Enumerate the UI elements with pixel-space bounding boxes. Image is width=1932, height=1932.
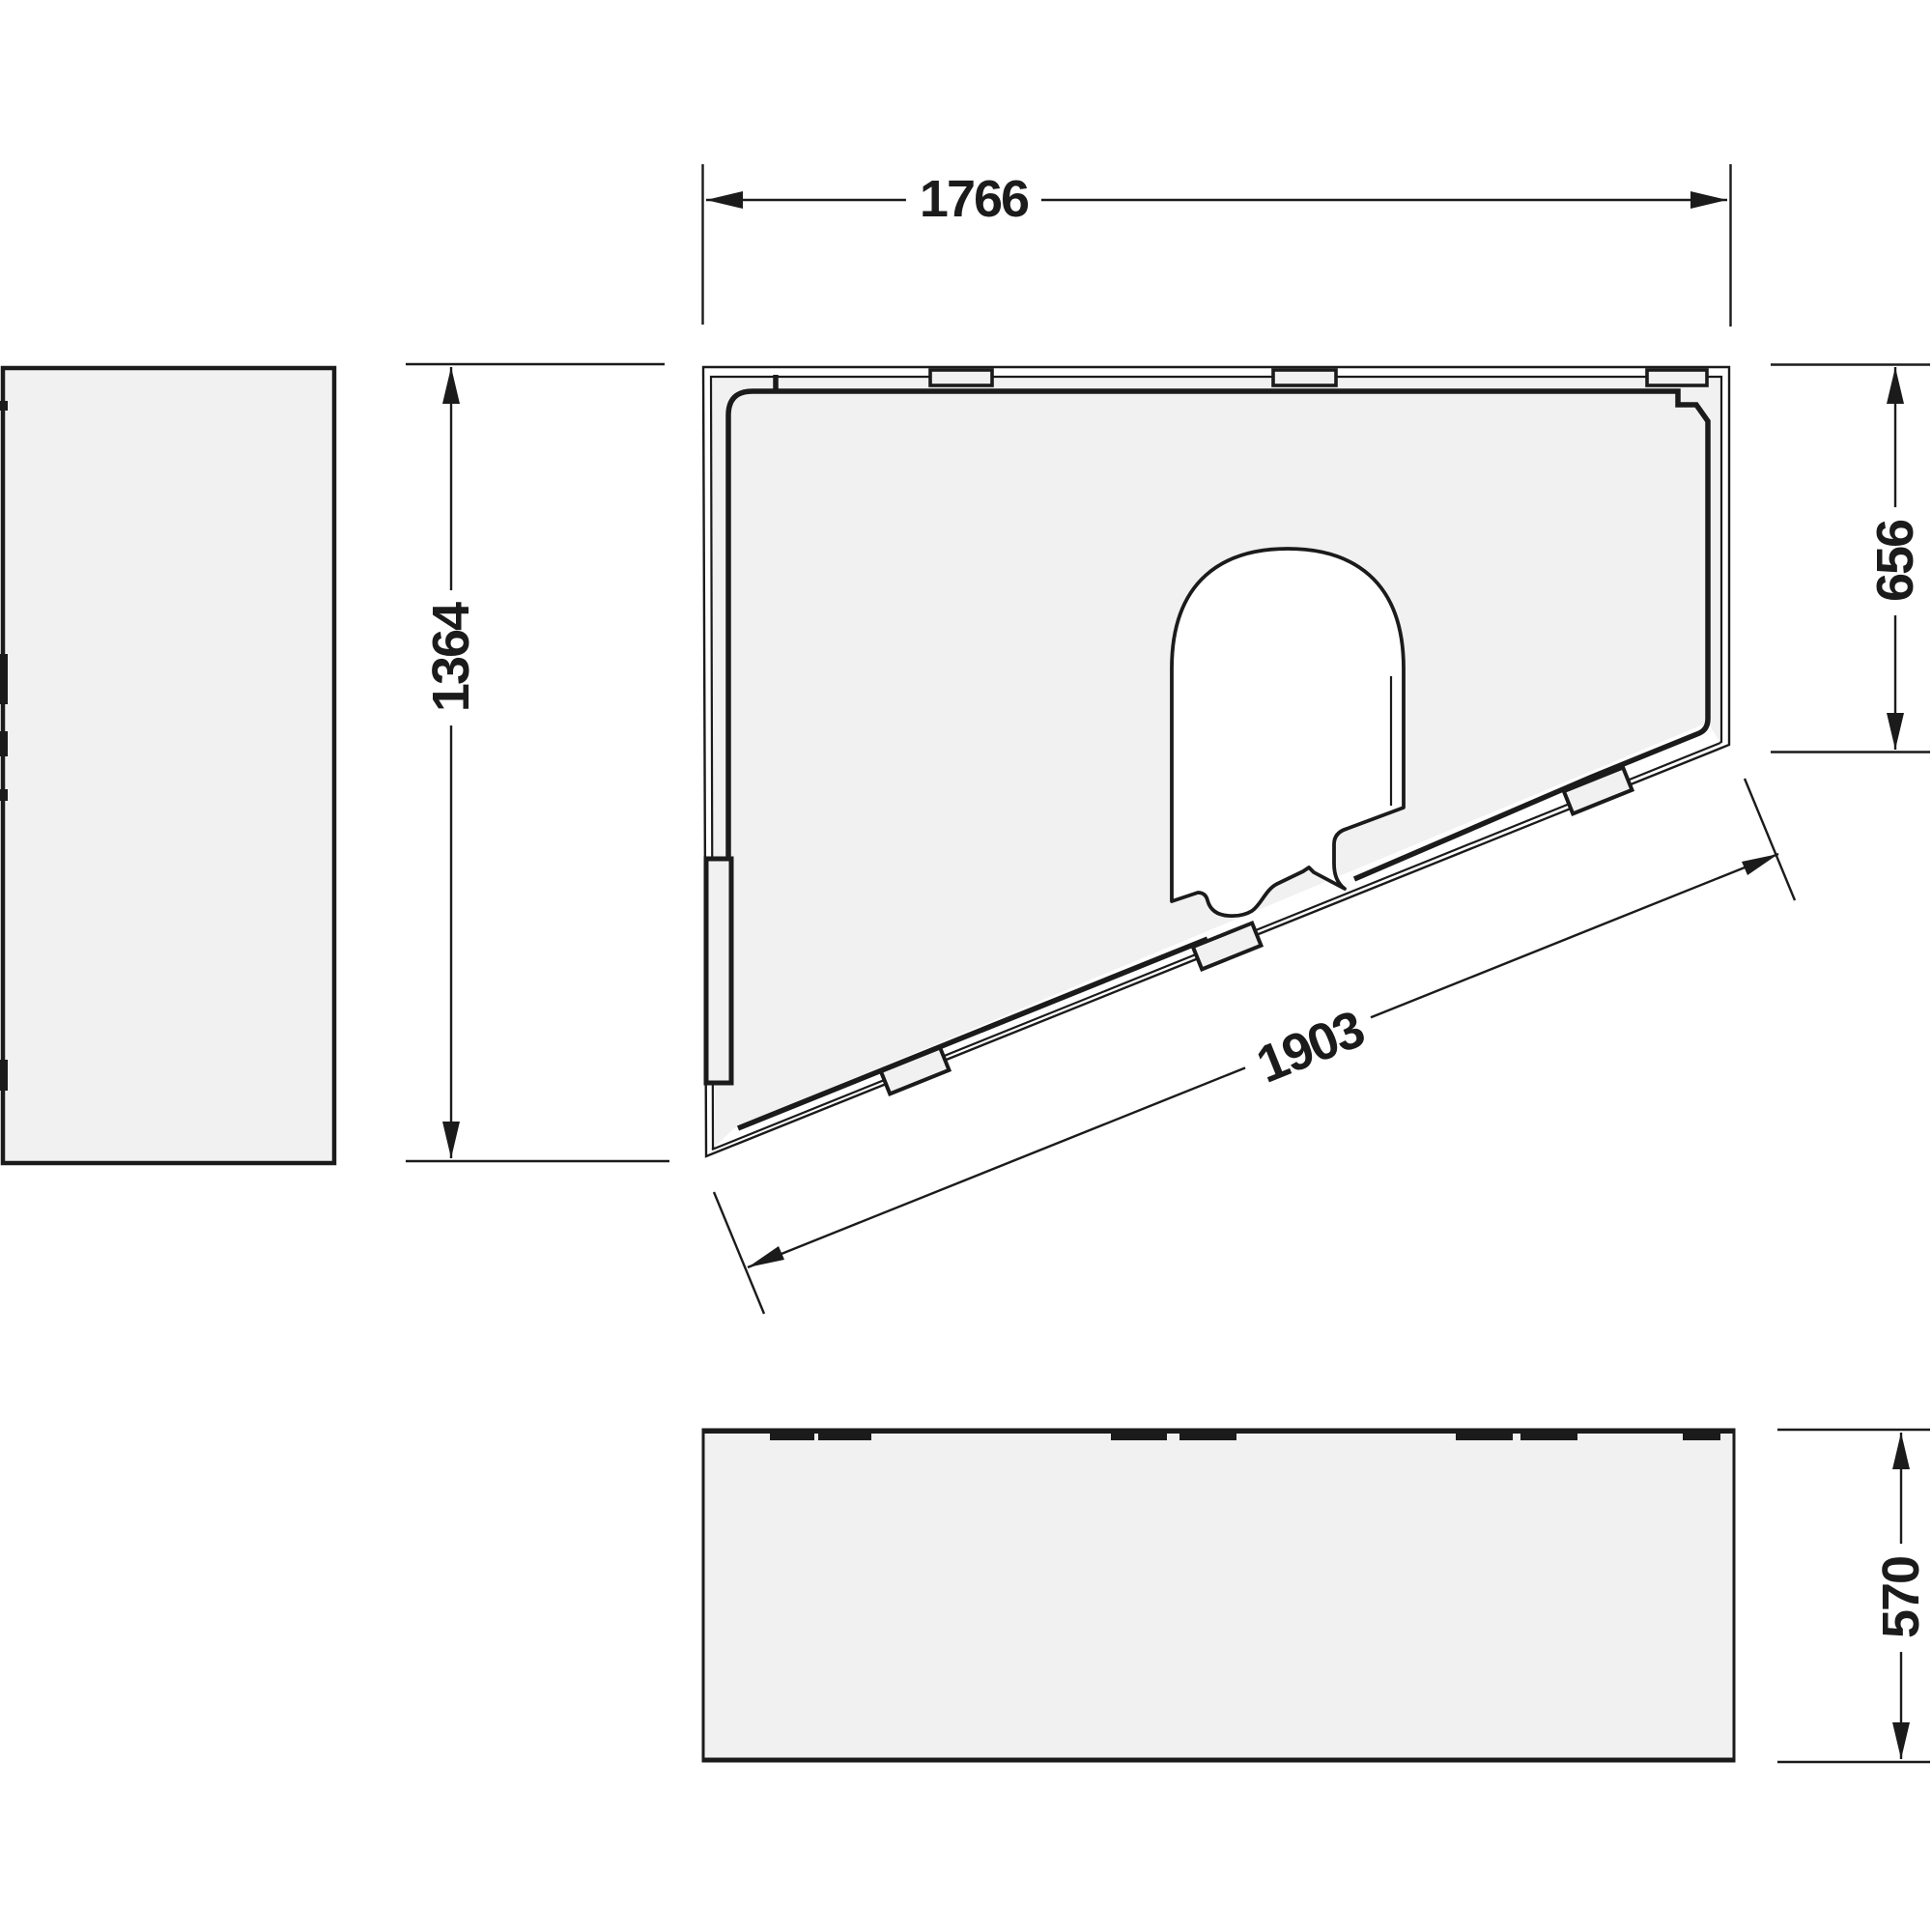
ext-line-lower: [714, 1192, 764, 1314]
arrow-up: [442, 367, 460, 404]
drawing-geometry: [0, 0, 1932, 1932]
dim-label-right-height: 656: [1867, 507, 1923, 615]
side-view-panel: [3, 368, 334, 1163]
arrow-down: [442, 1122, 460, 1158]
dim-label-depth: 570: [1873, 1544, 1929, 1652]
bottom-view-panel: [703, 1430, 1734, 1761]
ext-line-upper: [1745, 779, 1795, 900]
arrow-up: [1887, 367, 1904, 404]
arrow-right: [1690, 191, 1727, 209]
top-tab-2: [1273, 370, 1336, 385]
dimension-left-height: [406, 364, 669, 1161]
plan-view: [703, 367, 1729, 1156]
arrow-lower-left: [748, 1246, 784, 1267]
arrow-left: [706, 191, 743, 209]
top-tab-1: [930, 370, 992, 385]
dim-label-top-width: 1766: [906, 171, 1041, 227]
bathtub-support-technical-drawing: 1766 1364 656 1903 570: [0, 0, 1932, 1932]
arrow-upper-right: [1742, 854, 1778, 875]
dimension-top-width: [703, 164, 1731, 327]
plan-left-edge-bar: [706, 859, 731, 1083]
arrow-down: [1892, 1722, 1910, 1759]
bottom-view: [703, 1430, 1734, 1761]
arrow-down: [1887, 713, 1904, 750]
top-tab-3: [1647, 370, 1707, 385]
dim-label-left-height: 1364: [423, 590, 479, 725]
arrow-up: [1892, 1433, 1910, 1469]
side-view: [0, 368, 334, 1163]
